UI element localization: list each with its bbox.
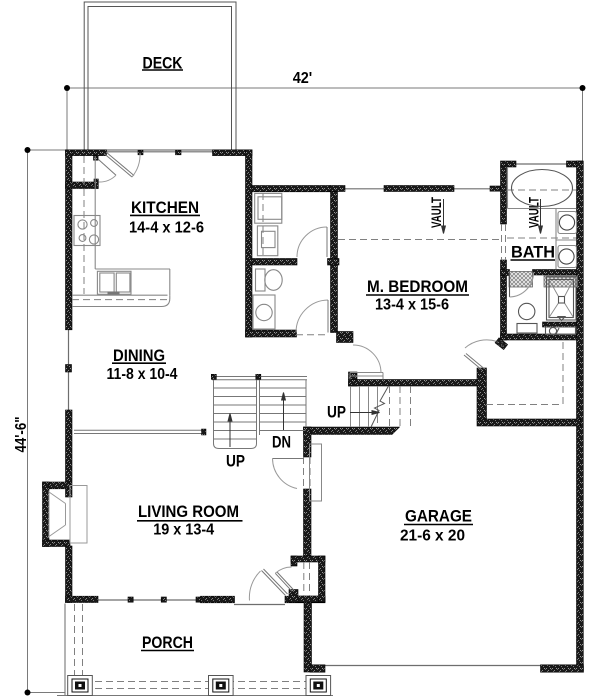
svg-text:11-8 x 10-4: 11-8 x 10-4 [107, 366, 178, 383]
svg-text:KITCHEN: KITCHEN [131, 198, 199, 217]
svg-text:13-4 x 15-6: 13-4 x 15-6 [375, 297, 449, 314]
svg-text:19 x 13-4: 19 x 13-4 [153, 522, 214, 539]
svg-text:UP: UP [327, 403, 346, 422]
svg-text:42': 42' [293, 70, 313, 87]
svg-text:BATH: BATH [511, 243, 555, 262]
svg-text:44'-6": 44'-6" [13, 417, 30, 453]
svg-text:M. BEDROOM: M. BEDROOM [367, 277, 468, 296]
svg-text:DINING: DINING [113, 346, 165, 365]
svg-text:DN: DN [272, 433, 291, 452]
svg-text:PORCH: PORCH [142, 633, 193, 652]
svg-text:VAULT: VAULT [527, 197, 542, 228]
svg-text:GARAGE: GARAGE [405, 507, 472, 526]
svg-text:14-4 x 12-6: 14-4 x 12-6 [129, 220, 204, 237]
svg-text:21-6 x 20: 21-6 x 20 [400, 528, 465, 545]
svg-text:LIVING ROOM: LIVING ROOM [138, 502, 239, 521]
svg-text:UP: UP [226, 452, 245, 471]
svg-text:VAULT: VAULT [429, 197, 444, 228]
